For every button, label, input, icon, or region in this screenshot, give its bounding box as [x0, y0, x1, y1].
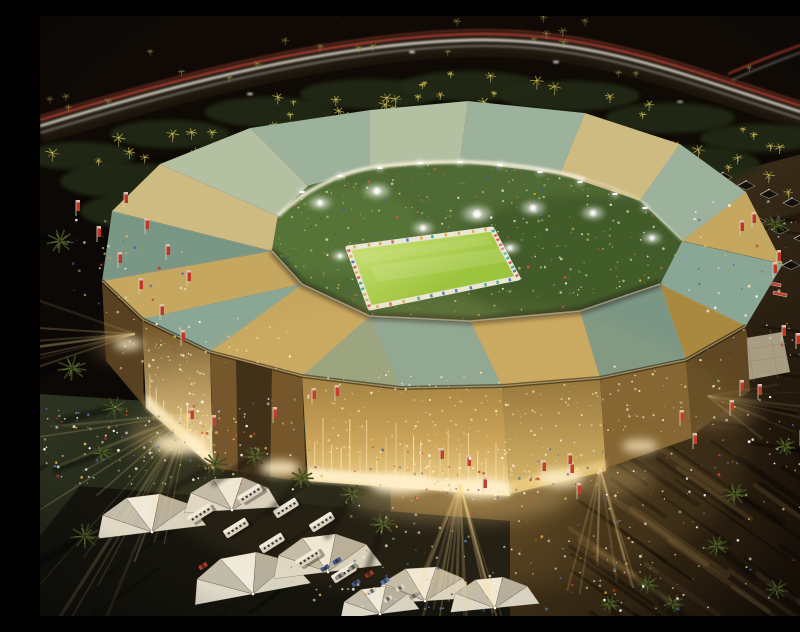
vignette — [40, 16, 800, 616]
render-canvas — [40, 16, 800, 616]
stadium-night-rendering: Aerial night-time architectural renderin… — [40, 16, 800, 616]
